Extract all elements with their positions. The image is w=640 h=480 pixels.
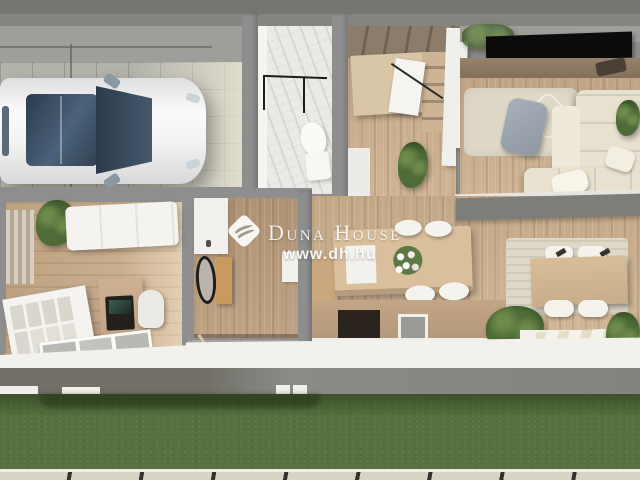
bathroom-stair-wall	[332, 14, 348, 200]
shower-glass-left	[263, 76, 265, 110]
entry-console	[216, 257, 232, 304]
floorplan-3d-render: Duna House www.dh.hu	[0, 0, 640, 480]
cabinet-handle	[206, 240, 211, 247]
office-daybed	[65, 201, 179, 251]
sideboard-drawer	[41, 299, 58, 325]
office-chair	[138, 290, 164, 328]
toilet-tank	[305, 151, 332, 181]
sidewalk	[0, 472, 640, 480]
entry-top-wall	[186, 188, 312, 198]
car-rear-window	[2, 106, 9, 156]
stair-hall-white-wall	[348, 148, 370, 200]
watermark-url-text: www.dh.hu	[283, 246, 377, 264]
sideboard-drawer	[10, 304, 27, 330]
sideboard-drawer	[57, 296, 74, 322]
car	[0, 76, 206, 186]
duna-house-diamond-wave-icon	[224, 211, 264, 251]
entry-cabinet	[194, 198, 228, 254]
bathroom-left-wall	[258, 26, 267, 194]
car-sunroof-divider	[60, 96, 62, 164]
garage-bathroom-wall	[242, 14, 258, 200]
office-top-wall	[0, 192, 186, 202]
watermark-brand-text: Duna House	[268, 220, 402, 246]
entry-kitchen-wall	[298, 190, 312, 350]
dining-table	[530, 255, 628, 306]
garage-back-wall	[0, 26, 242, 64]
top-wall-edge	[0, 0, 640, 14]
car-sunroof	[26, 94, 98, 166]
dining-chair	[578, 300, 608, 317]
sideboard-drawer	[25, 302, 42, 328]
shower-glass-right	[303, 77, 305, 113]
car-windshield	[96, 86, 152, 174]
lawn-shadow-patch	[40, 394, 320, 408]
top-wall-face	[0, 14, 640, 26]
front-door-threshold	[194, 334, 300, 338]
office-blinds	[6, 210, 34, 284]
garage-door-track	[0, 46, 212, 48]
dining-chair	[544, 300, 574, 317]
office-entry-wall	[182, 192, 194, 342]
laptop-screen	[109, 300, 131, 314]
